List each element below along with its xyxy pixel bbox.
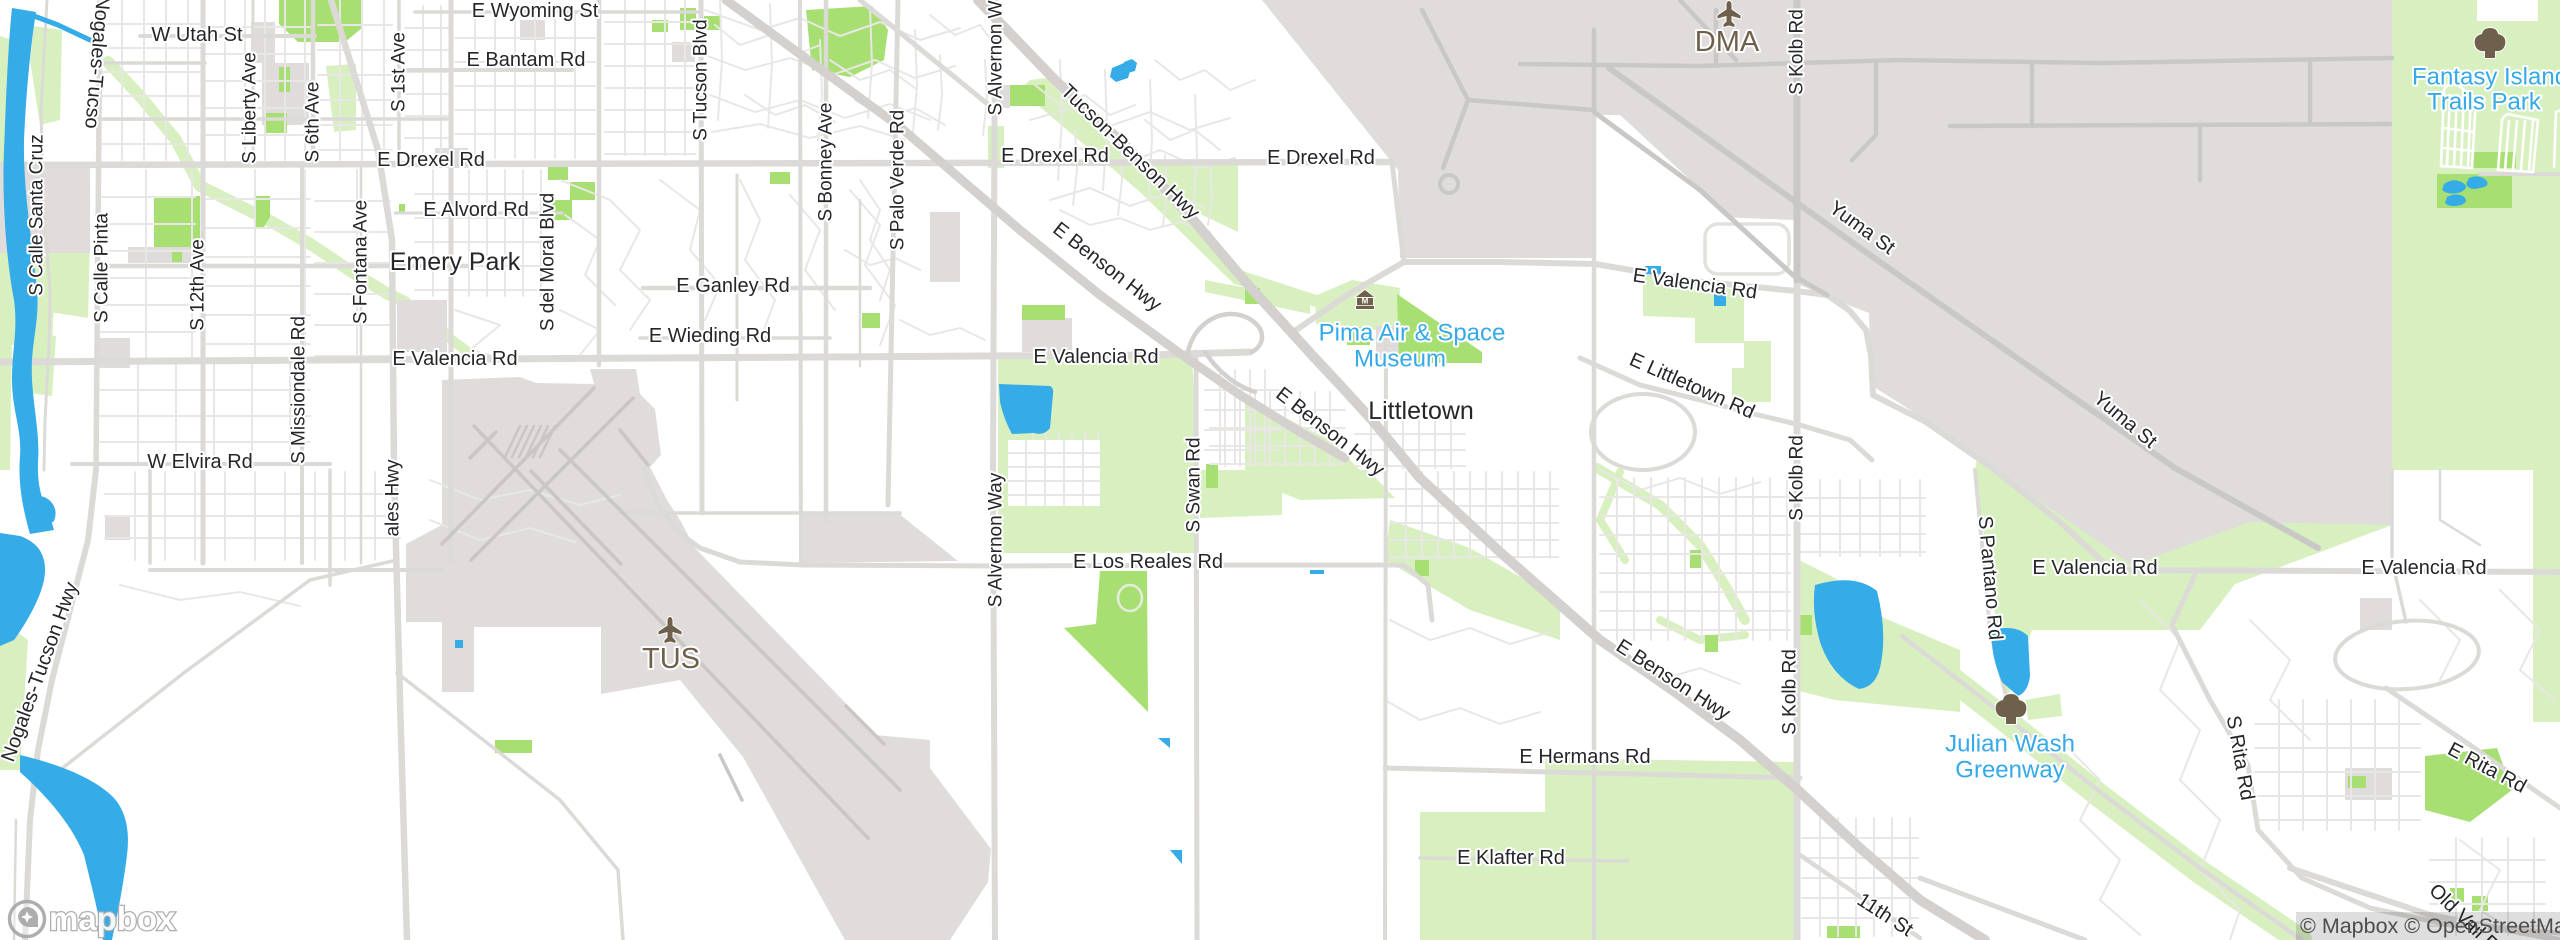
svg-text:ales Hwy: ales Hwy (383, 459, 404, 537)
svg-text:E Hermans Rd: E Hermans Rd (1519, 746, 1650, 768)
svg-text:mapbox: mapbox (49, 900, 176, 937)
svg-text:E Valencia Rd: E Valencia Rd (1033, 346, 1158, 368)
svg-text:S Alvernon W: S Alvernon W (986, 0, 1007, 115)
svg-text:S 12th Ave: S 12th Ave (188, 239, 209, 331)
svg-text:Littletown: Littletown (1368, 397, 1474, 425)
svg-text:E Wieding Rd: E Wieding Rd (649, 325, 771, 347)
svg-text:E Drexel Rd: E Drexel Rd (1001, 145, 1109, 167)
svg-text:E Alvord Rd: E Alvord Rd (423, 199, 529, 221)
svg-text:S Palo Verde Rd: S Palo Verde Rd (888, 110, 909, 250)
svg-text:TUS: TUS (642, 643, 700, 675)
svg-text:E Klafter Rd: E Klafter Rd (1457, 847, 1565, 869)
svg-text:S Kolb Rd: S Kolb Rd (1787, 435, 1808, 521)
svg-text:S Kolb Rd: S Kolb Rd (1780, 649, 1801, 735)
svg-text:S 6th Ave: S 6th Ave (303, 82, 324, 163)
svg-text:S Swan Rd: S Swan Rd (1184, 437, 1205, 532)
svg-text:S Liberty Ave: S Liberty Ave (240, 52, 261, 164)
svg-text:E Wyoming St: E Wyoming St (472, 0, 599, 22)
svg-text:E Drexel Rd: E Drexel Rd (377, 149, 485, 171)
svg-text:Greenway: Greenway (1955, 757, 2064, 784)
svg-text:Pima Air & Space: Pima Air & Space (1319, 320, 1506, 347)
svg-text:S Tucson Blvd: S Tucson Blvd (691, 19, 712, 140)
svg-text:W Utah St: W Utah St (151, 24, 243, 46)
svg-text:M: M (1362, 297, 1369, 306)
svg-text:S Bonney Ave: S Bonney Ave (816, 102, 837, 221)
svg-text:E Drexel Rd: E Drexel Rd (1267, 147, 1375, 169)
svg-text:S Missiondale Rd: S Missiondale Rd (289, 316, 310, 464)
svg-text:Museum: Museum (1354, 346, 1446, 373)
svg-text:Julian Wash: Julian Wash (1945, 731, 2075, 758)
svg-text:E Bantam Rd: E Bantam Rd (467, 49, 586, 71)
svg-text:E Ganley Rd: E Ganley Rd (676, 275, 789, 297)
svg-text:S Fontana Ave: S Fontana Ave (351, 200, 372, 324)
svg-text:E Valencia Rd: E Valencia Rd (2032, 557, 2157, 579)
svg-text:S 1st Ave: S 1st Ave (389, 32, 410, 112)
svg-text:E Los Reales Rd: E Los Reales Rd (1073, 551, 1223, 573)
svg-text:S Calle Santa Cruz: S Calle Santa Cruz (27, 134, 48, 296)
svg-text:S del Moral Blvd: S del Moral Blvd (538, 193, 559, 331)
svg-text:E Valencia Rd: E Valencia Rd (392, 348, 517, 370)
svg-text:Trails Park: Trails Park (2427, 89, 2542, 116)
svg-text:Fantasy Island: Fantasy Island (2412, 64, 2560, 91)
svg-text:E Valencia Rd: E Valencia Rd (2361, 557, 2486, 579)
svg-text:Emery Park: Emery Park (390, 248, 521, 276)
svg-text:S Calle Pinta: S Calle Pinta (92, 213, 113, 323)
svg-text:S Kolb Rd: S Kolb Rd (1787, 9, 1808, 95)
svg-text:DMA: DMA (1695, 26, 1760, 58)
svg-text:S Alvernon Way: S Alvernon Way (986, 472, 1007, 607)
svg-text:W Elvira Rd: W Elvira Rd (147, 451, 253, 473)
svg-text:© Mapbox © OpenStreetMap: © Mapbox © OpenStreetMap (2300, 914, 2560, 938)
